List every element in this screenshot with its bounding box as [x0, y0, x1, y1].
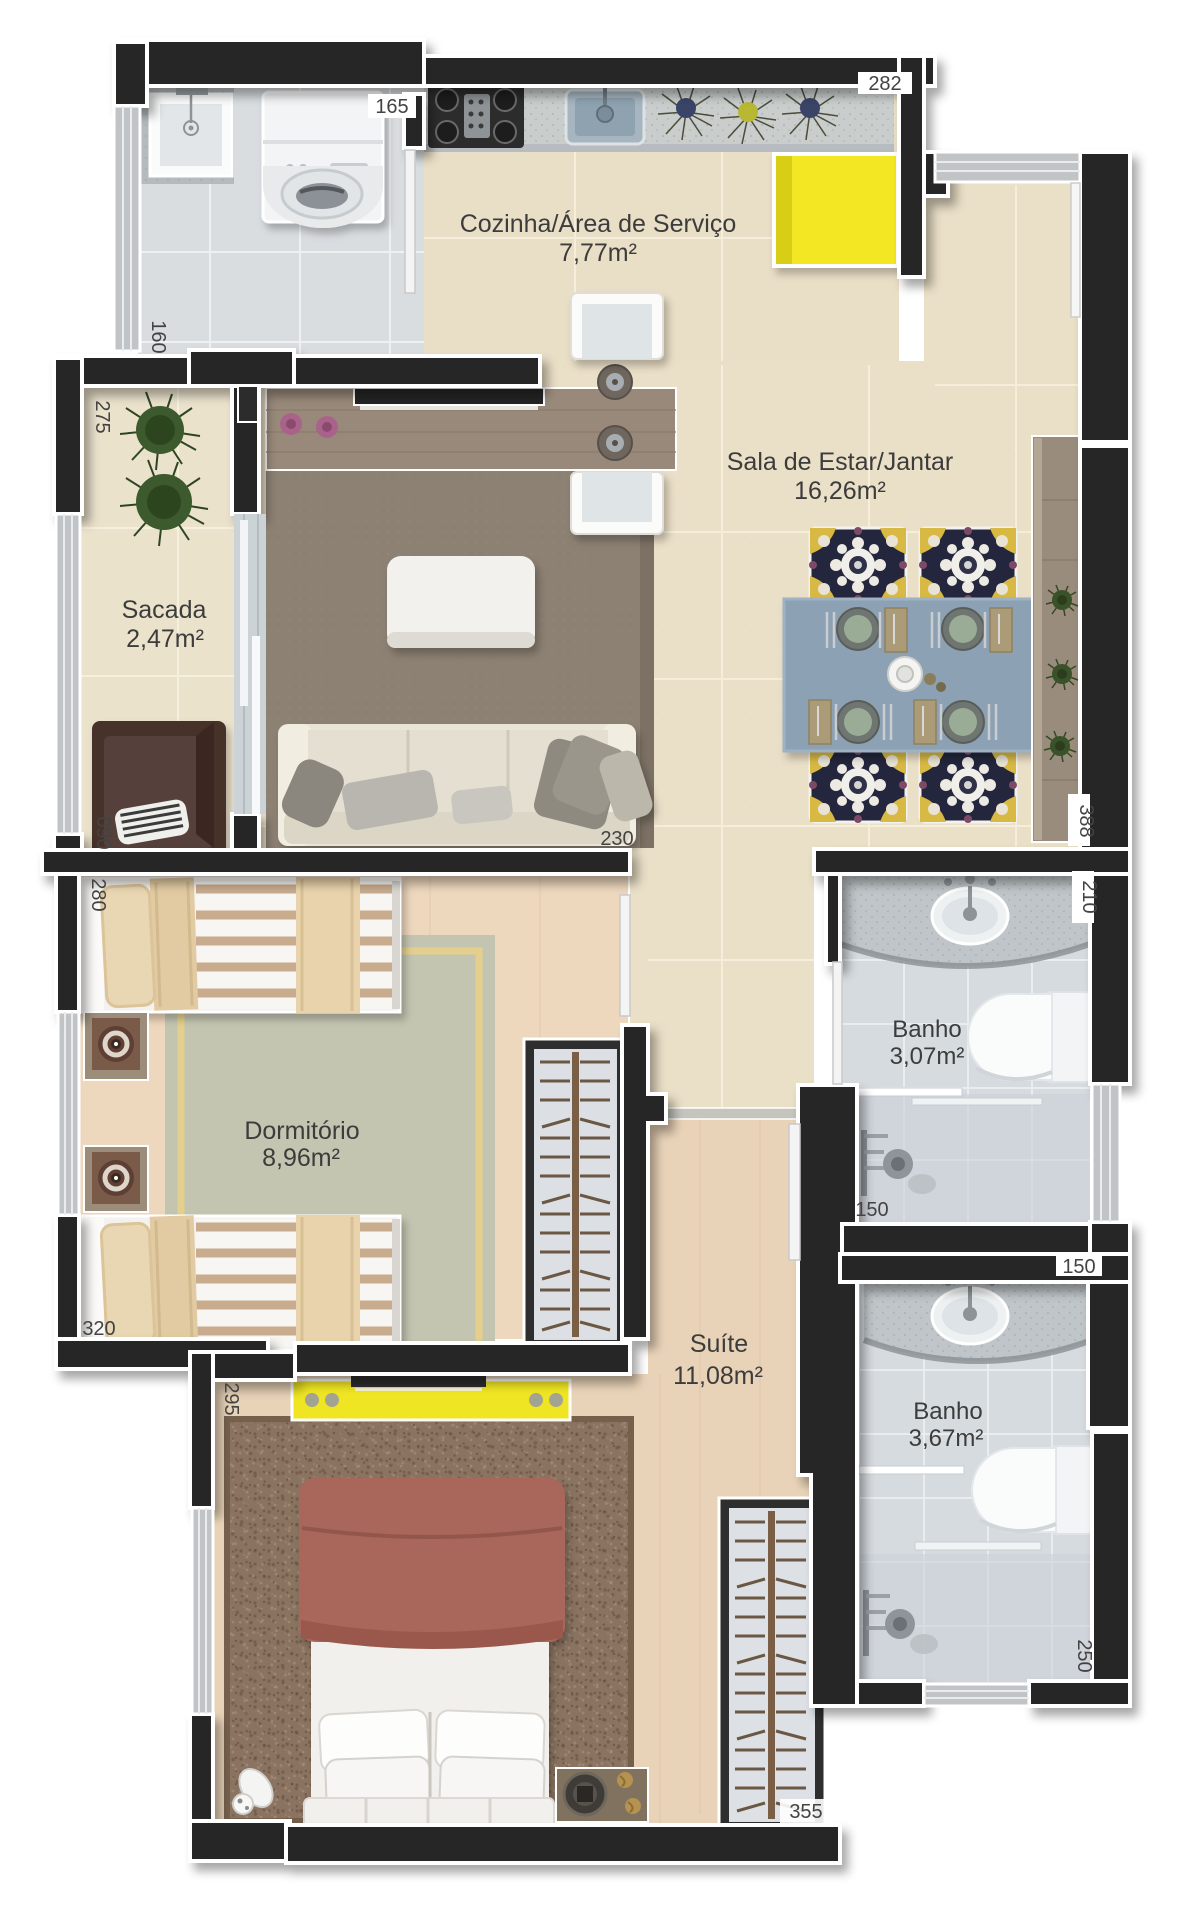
- svg-text:388: 388: [1075, 804, 1097, 837]
- svg-text:320: 320: [82, 1318, 115, 1340]
- svg-text:090: 090: [92, 816, 114, 849]
- svg-text:230: 230: [600, 828, 633, 850]
- svg-text:275: 275: [91, 400, 113, 433]
- svg-text:250: 250: [1073, 1639, 1095, 1672]
- svg-text:7,77m²: 7,77m²: [559, 239, 637, 267]
- svg-text:210: 210: [1078, 880, 1100, 913]
- svg-text:150: 150: [1062, 1256, 1095, 1278]
- svg-text:11,08m²: 11,08m²: [673, 1362, 763, 1390]
- svg-text:2,47m²: 2,47m²: [126, 625, 204, 653]
- svg-text:Banho: Banho: [913, 1398, 982, 1425]
- svg-text:295: 295: [220, 1382, 242, 1415]
- svg-text:3,07m²: 3,07m²: [890, 1043, 965, 1070]
- svg-text:150: 150: [855, 1199, 888, 1221]
- svg-text:3,67m²: 3,67m²: [909, 1425, 984, 1452]
- svg-text:Sacada: Sacada: [122, 596, 207, 624]
- svg-text:280: 280: [87, 878, 109, 911]
- svg-text:Cozinha/Área de Serviço: Cozinha/Área de Serviço: [460, 209, 737, 238]
- svg-text:Dormitório: Dormitório: [244, 1117, 359, 1145]
- svg-text:160: 160: [147, 320, 169, 353]
- svg-text:282: 282: [868, 73, 901, 95]
- svg-text:16,26m²: 16,26m²: [794, 477, 886, 505]
- svg-text:8,96m²: 8,96m²: [262, 1144, 340, 1172]
- svg-text:Banho: Banho: [892, 1016, 961, 1043]
- svg-text:Suíte: Suíte: [690, 1330, 748, 1358]
- svg-text:355: 355: [789, 1801, 822, 1823]
- svg-text:Sala de Estar/Jantar: Sala de Estar/Jantar: [727, 448, 954, 476]
- svg-text:165: 165: [375, 96, 408, 118]
